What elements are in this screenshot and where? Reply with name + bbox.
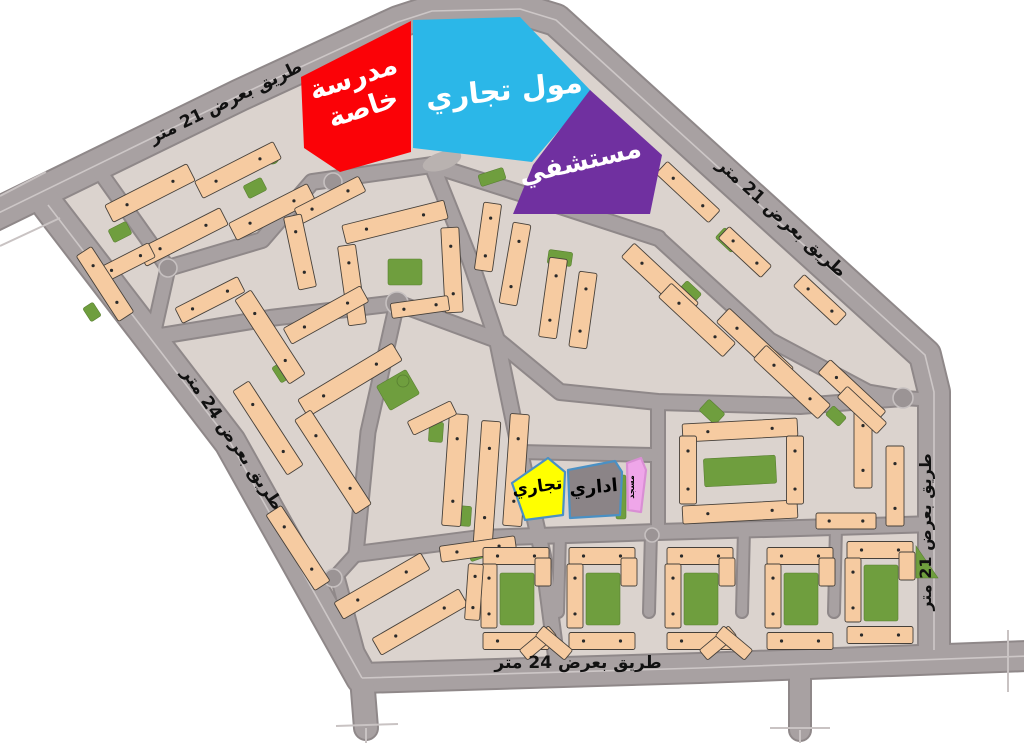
entrance-dot bbox=[771, 576, 774, 579]
entrance-dot bbox=[780, 554, 783, 557]
building bbox=[567, 564, 583, 628]
road bbox=[558, 534, 560, 612]
entrance-dot bbox=[251, 403, 254, 406]
entrance-dot bbox=[356, 598, 359, 601]
building bbox=[816, 513, 876, 529]
site-plan-map: مدرسةخاصةمول تجاريمستشفيتجارياداريمسجدطر… bbox=[0, 0, 1024, 743]
building bbox=[886, 446, 904, 526]
entrance-dot bbox=[115, 301, 118, 304]
entrance-dot bbox=[253, 312, 256, 315]
entrance-dot bbox=[771, 612, 774, 615]
entrance-dot bbox=[686, 487, 689, 490]
entrance-dot bbox=[443, 606, 446, 609]
entrance-dot bbox=[771, 427, 774, 430]
building bbox=[719, 558, 735, 586]
entrance-dot bbox=[310, 568, 313, 571]
building bbox=[845, 558, 861, 622]
entrance-dot bbox=[402, 308, 405, 311]
entrance-dot bbox=[422, 213, 425, 216]
zone-label-admin: اداري bbox=[568, 475, 618, 500]
entrance-dot bbox=[394, 634, 397, 637]
entrance-dot bbox=[347, 261, 350, 264]
entrance-dot bbox=[110, 269, 113, 272]
entrance-dot bbox=[772, 364, 775, 367]
entrance-dot bbox=[292, 199, 295, 202]
roundabout bbox=[159, 259, 177, 277]
green-patch bbox=[784, 573, 818, 625]
building bbox=[481, 564, 497, 628]
entrance-dot bbox=[487, 612, 490, 615]
entrance-dot bbox=[456, 437, 459, 440]
entrance-dot bbox=[897, 633, 900, 636]
entrance-dot bbox=[375, 363, 378, 366]
entrance-dot bbox=[851, 606, 854, 609]
entrance-dot bbox=[671, 612, 674, 615]
entrance-dot bbox=[496, 554, 499, 557]
entrance-dot bbox=[793, 449, 796, 452]
entrance-dot bbox=[434, 303, 437, 306]
entrance-dot bbox=[893, 462, 896, 465]
entrance-dot bbox=[191, 307, 194, 310]
entrance-dot bbox=[686, 449, 689, 452]
road bbox=[649, 532, 651, 612]
entrance-dot bbox=[496, 639, 499, 642]
entrance-dot bbox=[672, 177, 675, 180]
entrance-dot bbox=[680, 639, 683, 642]
entrance-dot bbox=[533, 554, 536, 557]
building bbox=[621, 558, 637, 586]
entrance-dot bbox=[258, 157, 261, 160]
entrance-dot bbox=[701, 204, 704, 207]
entrance-dot bbox=[405, 570, 408, 573]
entrance-dot bbox=[92, 264, 95, 267]
entrance-dot bbox=[828, 519, 831, 522]
green-patch bbox=[684, 573, 718, 625]
entrance-dot bbox=[488, 447, 491, 450]
entrance-dot bbox=[204, 224, 207, 227]
entrance-dot bbox=[860, 633, 863, 636]
road-width-label-road-bottom: طريق بعرض 24 متر bbox=[493, 653, 661, 673]
entrance-dot bbox=[348, 487, 351, 490]
entrance-dot bbox=[171, 180, 174, 183]
building bbox=[680, 436, 697, 504]
entrance-dot bbox=[489, 217, 492, 220]
entrance-dot bbox=[735, 327, 738, 330]
entrance-dot bbox=[487, 576, 490, 579]
building bbox=[819, 558, 835, 586]
entrance-dot bbox=[835, 376, 838, 379]
building bbox=[535, 558, 551, 586]
entrance-dot bbox=[619, 554, 622, 557]
entrance-dot bbox=[573, 576, 576, 579]
entrance-dot bbox=[322, 394, 325, 397]
entrance-dot bbox=[780, 639, 783, 642]
entrance-dot bbox=[451, 500, 454, 503]
entrance-dot bbox=[449, 245, 452, 248]
green-patch bbox=[500, 573, 534, 625]
building bbox=[787, 436, 804, 504]
entrance-dot bbox=[897, 548, 900, 551]
entrance-dot bbox=[860, 548, 863, 551]
entrance-dot bbox=[139, 254, 142, 257]
entrance-dot bbox=[861, 424, 864, 427]
entrance-dot bbox=[677, 302, 680, 305]
roundabout bbox=[893, 388, 913, 408]
entrance-dot bbox=[310, 208, 313, 211]
entrance-dot bbox=[680, 554, 683, 557]
entrance-dot bbox=[732, 239, 735, 242]
entrance-dot bbox=[483, 516, 486, 519]
entrance-dot bbox=[573, 612, 576, 615]
entrance-dot bbox=[158, 247, 161, 250]
entrance-dot bbox=[455, 550, 458, 553]
building bbox=[569, 633, 635, 650]
green-circle bbox=[397, 375, 409, 387]
entrance-dot bbox=[584, 287, 587, 290]
entrance-dot bbox=[517, 437, 520, 440]
entrance-dot bbox=[807, 287, 810, 290]
entrance-dot bbox=[283, 525, 286, 528]
entrance-dot bbox=[578, 329, 581, 332]
building bbox=[847, 627, 913, 644]
entrance-dot bbox=[706, 512, 709, 515]
entrance-dot bbox=[830, 309, 833, 312]
entrance-dot bbox=[582, 554, 585, 557]
entrance-dot bbox=[214, 180, 217, 183]
entrance-dot bbox=[861, 519, 864, 522]
green-patch bbox=[388, 259, 422, 285]
entrance-dot bbox=[671, 576, 674, 579]
entrance-dot bbox=[473, 575, 476, 578]
site-plan-canvas: مدرسةخاصةمول تجاريمستشفيتجارياداريمسجدطر… bbox=[0, 0, 1024, 743]
entrance-dot bbox=[484, 254, 487, 257]
building bbox=[767, 633, 833, 650]
entrance-dot bbox=[284, 359, 287, 362]
entrance-dot bbox=[346, 301, 349, 304]
entrance-dot bbox=[619, 639, 622, 642]
entrance-dot bbox=[303, 271, 306, 274]
entrance-dot bbox=[713, 335, 716, 338]
entrance-dot bbox=[471, 606, 474, 609]
entrance-dot bbox=[548, 319, 551, 322]
entrance-dot bbox=[452, 292, 455, 295]
road bbox=[362, 678, 366, 728]
entrance-dot bbox=[861, 469, 864, 472]
green-patch bbox=[864, 565, 898, 621]
entrance-dot bbox=[793, 487, 796, 490]
green-patch bbox=[83, 302, 102, 322]
entrance-dot bbox=[808, 397, 811, 400]
entrance-dot bbox=[755, 261, 758, 264]
entrance-dot bbox=[282, 450, 285, 453]
road-end-tick bbox=[336, 724, 398, 726]
green-patch bbox=[703, 455, 776, 487]
entrance-dot bbox=[640, 262, 643, 265]
entrance-dot bbox=[517, 240, 520, 243]
entrance-dot bbox=[851, 570, 854, 573]
entrance-dot bbox=[817, 554, 820, 557]
road bbox=[520, 452, 652, 455]
road bbox=[742, 529, 744, 612]
entrance-dot bbox=[555, 274, 558, 277]
entrance-dot bbox=[717, 554, 720, 557]
entrance-dot bbox=[509, 285, 512, 288]
entrance-dot bbox=[248, 222, 251, 225]
entrance-dot bbox=[582, 639, 585, 642]
entrance-dot bbox=[125, 203, 128, 206]
roundabout bbox=[645, 528, 659, 542]
entrance-dot bbox=[346, 189, 349, 192]
entrance-dot bbox=[817, 639, 820, 642]
zone-label-mosque: مسجد bbox=[627, 475, 636, 499]
road-width-label-road-right: طريق بعرض 21 متر bbox=[916, 453, 935, 611]
entrance-dot bbox=[303, 325, 306, 328]
entrance-dot bbox=[771, 509, 774, 512]
building bbox=[899, 552, 915, 580]
entrance-dot bbox=[294, 230, 297, 233]
building bbox=[665, 564, 681, 628]
entrance-dot bbox=[226, 290, 229, 293]
building bbox=[765, 564, 781, 628]
entrance-dot bbox=[893, 507, 896, 510]
green-patch bbox=[586, 573, 620, 625]
entrance-dot bbox=[706, 430, 709, 433]
entrance-dot bbox=[365, 228, 368, 231]
entrance-dot bbox=[314, 434, 317, 437]
